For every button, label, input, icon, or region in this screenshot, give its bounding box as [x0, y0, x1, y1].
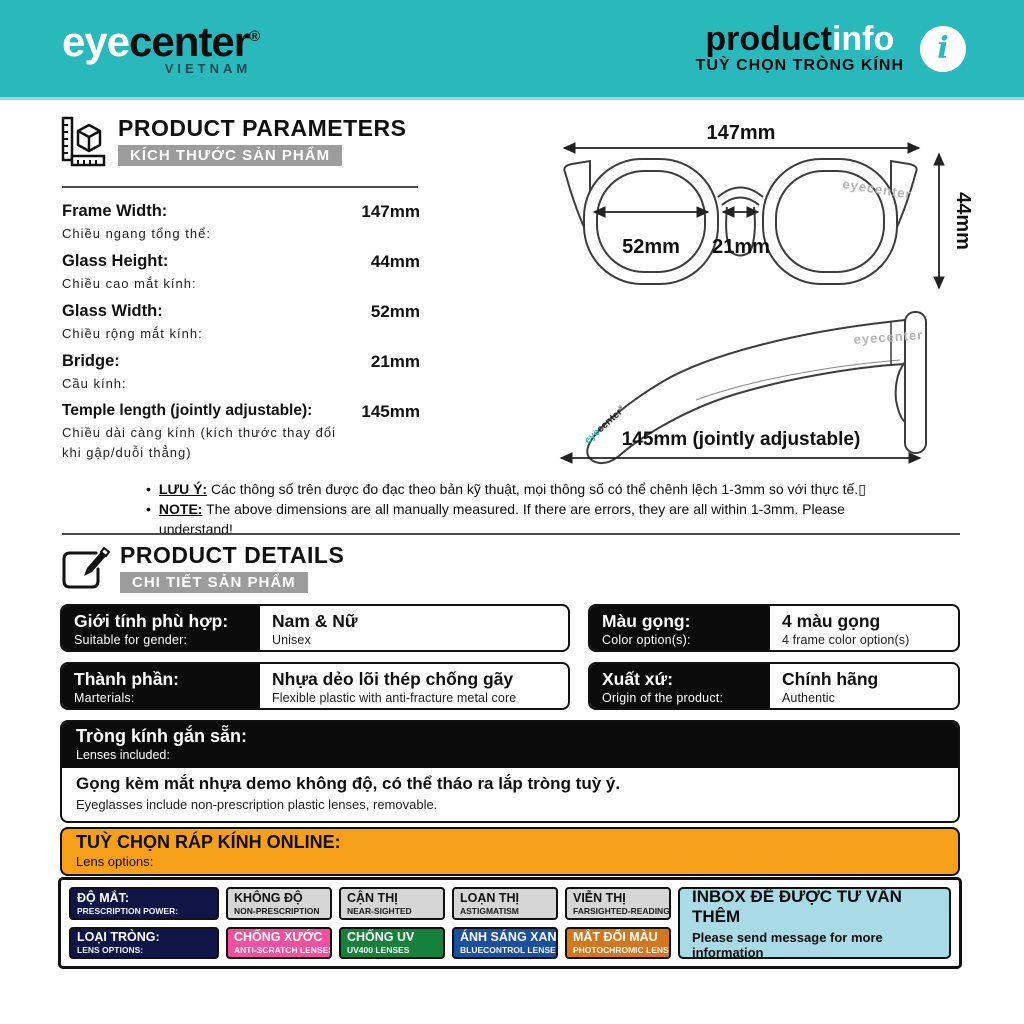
chip-anti-scratch: CHỐNG XƯỚC ANTI-SCRATCH LENSES [226, 927, 332, 960]
title-info: info [832, 20, 894, 58]
detail-materials: Thành phần: Marterials: Nhựa dẻo lõi thé… [60, 662, 570, 710]
temple-length-label: 145mm (jointly adjustable) [622, 429, 861, 450]
lens-options-header: TUỲ CHỌN RÁP KÍNH ONLINE: Lens options: [60, 827, 960, 876]
bullet: • [146, 479, 151, 499]
product-info-sheet: eyecenter® VIETNAM productinfo TUỲ CHỌN … [0, 0, 1024, 1024]
param-value: 147mm [361, 202, 420, 222]
front-left-lens-frame [584, 159, 718, 284]
registered-mark: ® [249, 28, 259, 45]
front-height-label: 44mm [952, 192, 974, 250]
chip-near-sighted: CẬN THỊ NEAR-SIGHTED [339, 887, 445, 920]
param-value: 52mm [371, 302, 420, 322]
front-width-label: 147mm [707, 122, 776, 144]
header-right: productinfo TUỲ CHỌN TRÒNG KÍNH i [696, 22, 966, 75]
lenses-included-box: Tròng kính gắn sẵn: Lenses included: Gọn… [60, 720, 960, 823]
front-bridge-bar [722, 198, 759, 206]
details-subtitle: CHI TIẾT SẢN PHẨM [120, 572, 308, 593]
glasses-dimension-diagram: 147mm 52mm 21mm eyecenter 44mm eyecenter… [544, 112, 1022, 472]
page-title: productinfo TUỲ CHỌN TRÒNG KÍNH [696, 22, 904, 75]
detail-origin: Xuất xứ: Origin of the product: Chính hã… [588, 662, 960, 710]
chip-farsighted: VIỄN THỊ FARSIGHTED-READING [565, 887, 671, 920]
title-product: product [705, 20, 832, 58]
chip-photochromic: MẮT ĐỔI MÀU PHOTOCHROMIC LENSES [565, 927, 671, 960]
param-value: 44mm [371, 252, 420, 272]
notes: • LƯU Ý: Các thông số trên được đo đạc t… [146, 479, 906, 539]
front-bridge-top [718, 188, 763, 198]
chip-non-prescription: KHÔNG ĐỘ NON-PRESCRIPTION [226, 887, 332, 920]
chip-prescription-power: ĐỘ MẮT: PRESCRIPTION POWER: [69, 887, 219, 920]
param-row-frame-width: Frame Width: Chiều ngang tổng thể: 147mm [62, 202, 420, 251]
param-value: 145mm [361, 402, 420, 422]
inbox-callout: INBOX ĐỂ ĐƯỢC TƯ VẤN THÊM Please send me… [678, 887, 951, 959]
lenses-included-label: Tròng kính gắn sẵn: [76, 726, 944, 747]
brand-wordmark: eyecenter® [62, 21, 259, 63]
parameters-title: PRODUCT PARAMETERS [118, 116, 406, 141]
chip-bluecontrol: ÁNH SÁNG XANH BLUECONTROL LENSES [452, 927, 558, 960]
details-section-header: PRODUCT DETAILS CHI TIẾT SẢN PHẨM [60, 543, 344, 593]
divider-parameters [62, 186, 418, 188]
parameters-section-header: PRODUCT PARAMETERS KÍCH THƯỚC SẢN PHẨM [60, 116, 406, 168]
bridge-width-label: 21mm [712, 236, 770, 258]
ruler-box-icon [60, 116, 108, 168]
details-grid: Giới tính phù hợp: Suitable for gender: … [60, 604, 960, 710]
brand-center: center [129, 18, 249, 65]
chip-lens-type: LOẠI TRÒNG: LENS OPTIONS: [69, 927, 219, 960]
detail-colors: Màu gọng: Color option(s): 4 màu gọng 4 … [588, 604, 960, 652]
param-row-temple-length: Temple length (jointly adjustable): Chiề… [62, 402, 420, 462]
chip-astigmatism: LOẠN THỊ ASTIGMATISM [452, 887, 558, 920]
front-right-lens-frame [763, 159, 897, 284]
parameters-subtitle: KÍCH THƯỚC SẢN PHẨM [118, 145, 342, 166]
header-bar: eyecenter® VIETNAM productinfo TUỲ CHỌN … [0, 0, 1024, 100]
lenses-included-value: Gọng kèm mắt nhựa demo không độ, có thể … [76, 774, 944, 794]
side-nose-pad [896, 362, 905, 422]
param-row-glass-width: Glass Width: Chiều rộng mắt kính: 52mm [62, 302, 420, 351]
param-value: 21mm [371, 352, 420, 372]
page-subtitle: TUỲ CHỌN TRÒNG KÍNH [696, 57, 904, 75]
brand-eye: eye [62, 18, 129, 65]
param-row-glass-height: Glass Height: Chiều cao mắt kính: 44mm [62, 252, 420, 301]
brand-logo: eyecenter® VIETNAM [62, 21, 259, 76]
lens-width-label: 52mm [622, 236, 680, 258]
chip-uv400: CHỐNG UV UV400 LENSES [339, 927, 445, 960]
parameters-list: Frame Width: Chiều ngang tổng thể: 147mm… [62, 202, 420, 463]
pencil-note-icon [60, 543, 110, 591]
info-icon: i [920, 26, 966, 72]
param-row-bridge: Bridge: Cầu kính: 21mm [62, 352, 420, 401]
divider-details [62, 533, 960, 535]
details-title: PRODUCT DETAILS [120, 543, 344, 568]
note-vi: • LƯU Ý: Các thông số trên được đo đạc t… [146, 479, 906, 499]
lens-options-grid: ĐỘ MẮT: PRESCRIPTION POWER: KHÔNG ĐỘ NON… [58, 877, 962, 969]
detail-gender: Giới tính phù hợp: Suitable for gender: … [60, 604, 570, 652]
